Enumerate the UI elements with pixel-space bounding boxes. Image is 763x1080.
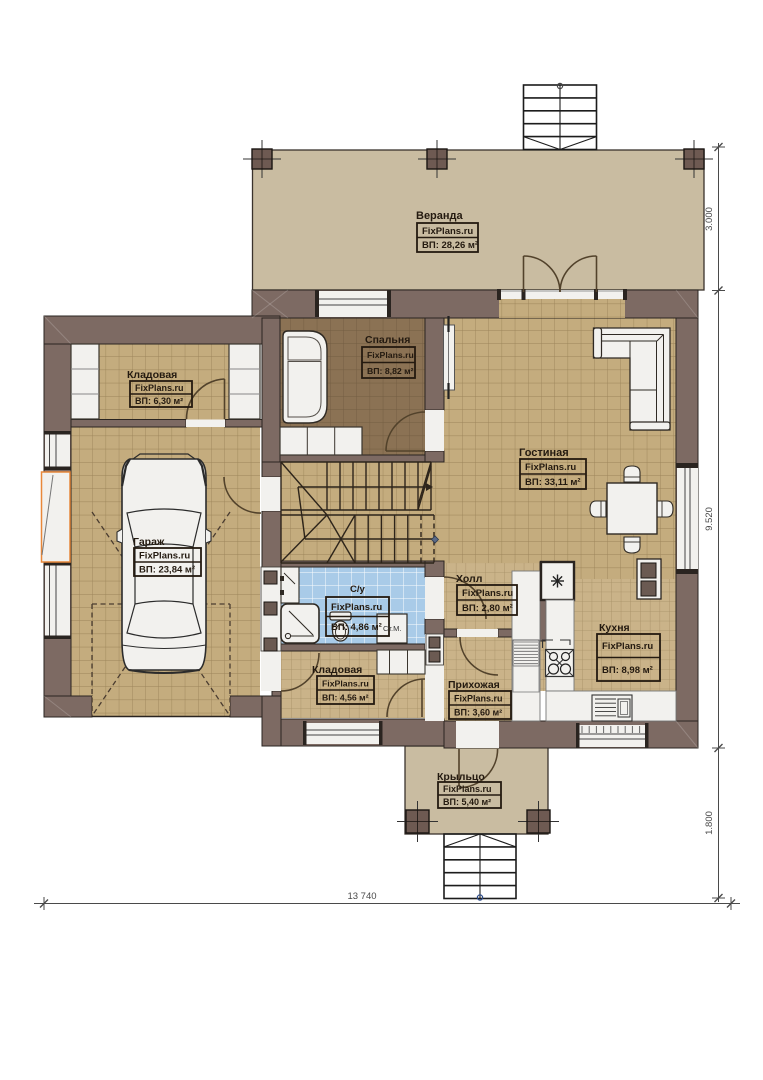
svg-text:Ст.М.: Ст.М. bbox=[383, 624, 401, 633]
svg-text:Прихожая: Прихожая bbox=[448, 679, 500, 691]
svg-text:FixPlans.ru: FixPlans.ru bbox=[462, 588, 513, 599]
svg-text:FixPlans.ru: FixPlans.ru bbox=[422, 226, 473, 237]
svg-text:FixPlans.ru: FixPlans.ru bbox=[454, 694, 503, 704]
svg-text:ВП: 23,84 м²: ВП: 23,84 м² bbox=[139, 565, 195, 576]
svg-text:ВП: 2,80 м²: ВП: 2,80 м² bbox=[462, 603, 513, 614]
svg-text:FixPlans.ru: FixPlans.ru bbox=[367, 350, 414, 360]
svg-text:ВП: 5,40 м²: ВП: 5,40 м² bbox=[443, 797, 491, 807]
svg-text:FixPlans.ru: FixPlans.ru bbox=[602, 641, 653, 652]
svg-text:Кухня: Кухня bbox=[599, 622, 630, 634]
svg-text:FixPlans.ru: FixPlans.ru bbox=[443, 784, 492, 794]
svg-text:Кладовая: Кладовая bbox=[127, 369, 177, 381]
svg-text:ВП: 28,26 м²: ВП: 28,26 м² bbox=[422, 240, 478, 251]
svg-text:ВП: 3,60 м²: ВП: 3,60 м² bbox=[454, 708, 502, 718]
svg-text:Гараж: Гараж bbox=[133, 536, 165, 548]
svg-text:ВП: 8,98 м²: ВП: 8,98 м² bbox=[602, 665, 653, 676]
svg-text:FixPlans.ru: FixPlans.ru bbox=[139, 551, 190, 562]
svg-text:Веранда: Веранда bbox=[416, 210, 464, 222]
svg-text:9.520: 9.520 bbox=[704, 507, 715, 531]
svg-text:ВП: 6,30 м²: ВП: 6,30 м² bbox=[135, 396, 183, 406]
svg-text:Спальня: Спальня bbox=[365, 334, 410, 346]
svg-text:ВП: 8,82 м²: ВП: 8,82 м² bbox=[367, 366, 414, 376]
svg-text:Холл: Холл bbox=[456, 573, 482, 585]
svg-text:FixPlans.ru: FixPlans.ru bbox=[135, 383, 184, 393]
svg-text:Кладовая: Кладовая bbox=[312, 664, 362, 676]
svg-text:ВП: 4,86 м²: ВП: 4,86 м² bbox=[331, 622, 382, 633]
svg-text:FixPlans.ru: FixPlans.ru bbox=[525, 462, 576, 473]
svg-text:С/у: С/у bbox=[350, 584, 366, 595]
svg-text:Гостиная: Гостиная bbox=[519, 447, 569, 459]
svg-text:1.800: 1.800 bbox=[704, 811, 715, 835]
svg-text:FixPlans.ru: FixPlans.ru bbox=[331, 602, 382, 613]
svg-text:13 740: 13 740 bbox=[347, 891, 376, 902]
svg-text:FixPlans.ru: FixPlans.ru bbox=[322, 679, 369, 689]
svg-text:3.000: 3.000 bbox=[704, 207, 715, 231]
svg-text:ВП: 33,11 м²: ВП: 33,11 м² bbox=[525, 477, 581, 488]
svg-text:ВП: 4,56 м²: ВП: 4,56 м² bbox=[322, 693, 369, 703]
